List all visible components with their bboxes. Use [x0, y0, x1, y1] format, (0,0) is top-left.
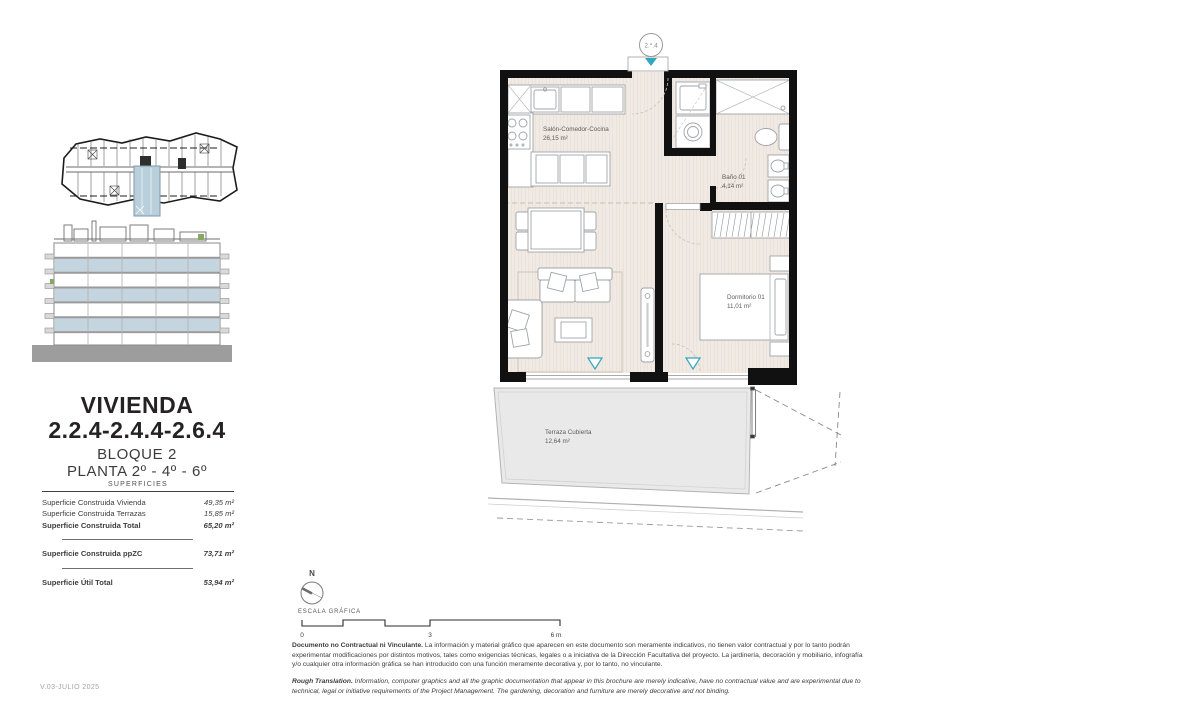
disclaimer-en-body: Information, computer graphics and all t… [292, 678, 861, 695]
disclaimer-en: Rough Translation. Information, computer… [292, 677, 868, 696]
sofa [538, 268, 612, 302]
elevation-highlighted-floors [55, 259, 219, 332]
scale-tick-6: 6 m [551, 632, 562, 639]
wardrobe [712, 212, 790, 238]
disclaimer-es-lead: Documento no Contractual ni Vinculante. [292, 642, 423, 649]
divider [62, 568, 193, 569]
elevation-tree2 [50, 279, 54, 284]
table-row: Superficie Construida Total 65,20 m² [42, 520, 234, 531]
areas-table: SUPERFICIES Superficie Construida Vivien… [42, 481, 234, 588]
floor-plan: 2.*.4 Salón-Comedor-Cocina 26,15 m² Baño… [480, 25, 845, 535]
bedroom-door-leaf [666, 204, 700, 210]
table-row: Superficie Construida Vivienda 49,35 m² [42, 497, 234, 508]
page-title: VIVIENDA [22, 393, 252, 418]
room-label: Baño 01 [722, 174, 746, 181]
room-area: 11,01 m² [727, 303, 751, 310]
table-row: Superficie Útil Total 53,94 m² [42, 577, 234, 588]
room-area: 26,15 m² [543, 135, 568, 142]
key-plan-figure [50, 108, 245, 230]
scale-tick-0: 0 [300, 632, 304, 639]
room-area: 4,14 m² [722, 183, 743, 190]
legal-footer: Documento no Contractual ni Vinculante. … [292, 641, 868, 697]
table-row: Superficie Construida Terrazas 15,85 m² [42, 508, 234, 519]
row-label: Superficie Útil Total [42, 577, 113, 588]
row-label: Superficie Construida Total [42, 520, 141, 531]
table-row: Superficie Construida ppZC 73,71 m² [42, 548, 234, 559]
slab-dashed-line [497, 518, 803, 531]
divider [62, 539, 193, 540]
divider [42, 491, 234, 492]
room-label: Salón-Comedor-Cocina [543, 126, 609, 133]
terrace-area [494, 388, 751, 494]
unit-marker-label: 2.*.4 [644, 43, 658, 50]
scale-caption: ESCALA GRÁFICA [298, 608, 361, 615]
row-label: Superficie Construida ppZC [42, 548, 142, 559]
slab-edge-line [488, 498, 803, 512]
neighbor-terrace-dashed [756, 390, 841, 493]
disclaimer-en-lead: Rough Translation. [292, 678, 353, 685]
room-label: Dormitorio 01 [727, 294, 765, 301]
elevation-ground [32, 345, 232, 362]
compass-needle [303, 589, 313, 594]
scale-bar [302, 620, 560, 626]
radiator [641, 288, 654, 362]
coffee-table [555, 318, 592, 342]
unit-numbers: 2.2.4-2.4.4-2.6.4 [22, 418, 252, 443]
areas-table-heading: SUPERFICIES [42, 481, 234, 488]
disclaimer-es: Documento no Contractual ni Vinculante. … [292, 641, 868, 670]
shower [716, 80, 790, 114]
elevation-roof-equipment [54, 221, 220, 241]
row-label: Superficie Construida Terrazas [42, 508, 146, 519]
elevation-tree [198, 234, 204, 240]
floor-label: PLANTA 2º - 4º - 6º [22, 463, 252, 480]
room-area: 12,64 m² [545, 438, 570, 445]
row-value: 65,20 m² [204, 520, 234, 531]
north-label: N [309, 569, 315, 578]
compass-and-scale: N ESCALA GRÁFICA 0 3 6 m [290, 563, 580, 643]
block-label: BLOQUE 2 [22, 446, 252, 463]
elevation-figure [30, 213, 235, 365]
armchair [504, 300, 542, 358]
room-label: Terraza Cubierta [545, 429, 592, 436]
row-value: 53,94 m² [204, 577, 234, 588]
row-value: 49,35 m² [204, 497, 234, 508]
key-plan-highlighted-unit [134, 166, 160, 216]
row-label: Superficie Construida Vivienda [42, 497, 146, 508]
version-stamp: V.03-JULIO 2025 [40, 684, 99, 691]
brochure-page: VIVIENDA 2.2.4-2.4.4-2.6.4 BLOQUE 2 PLAN… [0, 0, 1181, 723]
key-plan-core2 [178, 158, 186, 169]
slab-edge-line2 [488, 504, 803, 518]
dining-set [516, 208, 596, 252]
row-value: 73,71 m² [204, 548, 234, 559]
scale-tick-3: 3 [428, 632, 432, 639]
title-block: VIVIENDA 2.2.4-2.4.4-2.6.4 BLOQUE 2 PLAN… [22, 393, 252, 480]
row-value: 15,85 m² [204, 508, 234, 519]
